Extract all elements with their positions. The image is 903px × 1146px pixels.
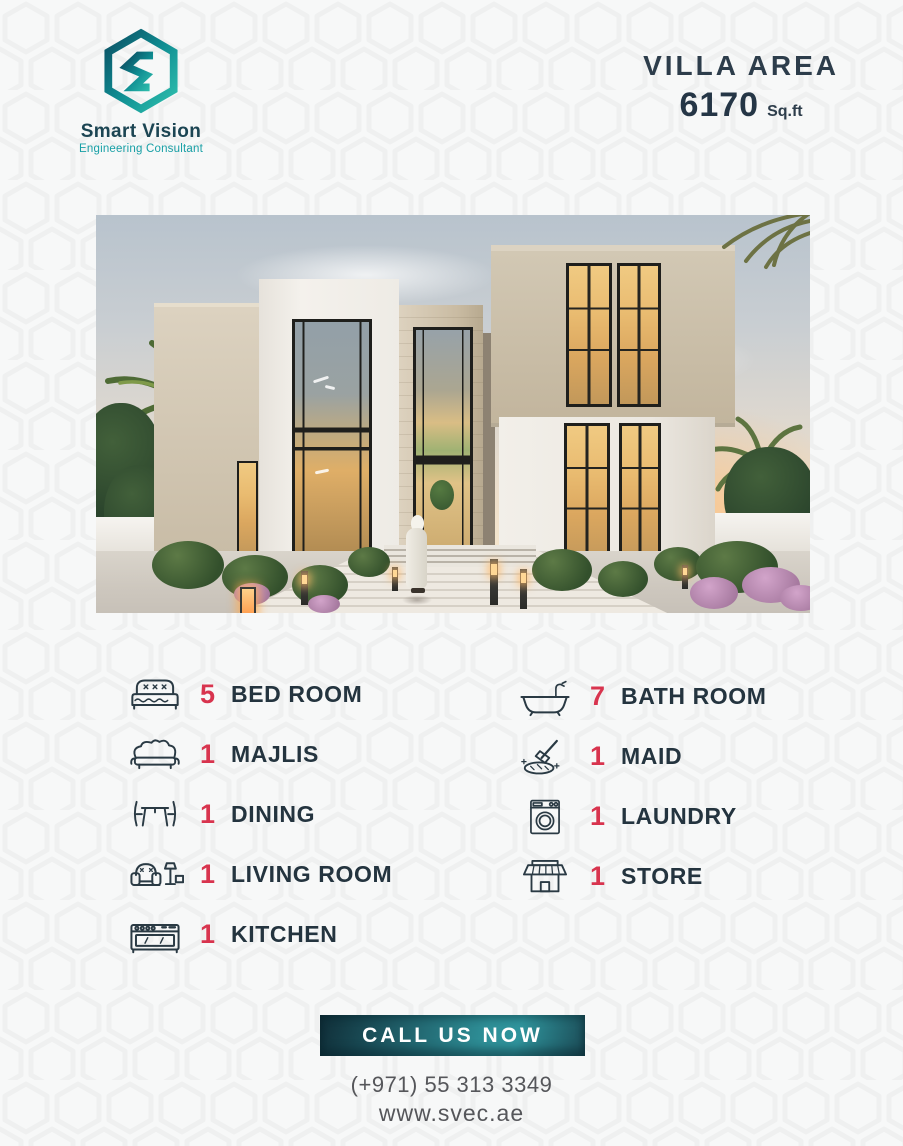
narrow-window — [237, 461, 258, 557]
bush — [654, 547, 702, 581]
brand-name: Smart Vision — [46, 121, 236, 143]
bush — [152, 541, 224, 589]
feature-row-store: 1 STORE — [516, 854, 767, 899]
bed-icon — [126, 672, 184, 718]
lower-window-2 — [619, 423, 661, 565]
dining-table-icon — [126, 792, 184, 838]
sofa-icon — [126, 732, 184, 778]
villa-area-label: VILLA AREA — [643, 50, 839, 82]
feature-row-kitchen: 1 KITCHEN — [126, 912, 392, 957]
feature-count: 1 — [200, 799, 215, 830]
washing-machine-icon — [516, 794, 574, 840]
bollard-light — [490, 559, 498, 605]
feature-count: 1 — [590, 741, 605, 772]
bush — [348, 547, 390, 577]
feature-count: 7 — [590, 681, 605, 712]
feature-count: 1 — [200, 859, 215, 890]
person-in-kandura — [402, 515, 432, 607]
palm-frond-overhang — [692, 215, 810, 281]
armchair-lamp-icon — [126, 852, 184, 898]
bathtub-icon — [516, 674, 574, 720]
feature-count: 5 — [200, 679, 215, 710]
flyer-page: Smart Vision Engineering Consultant VILL… — [0, 0, 903, 1146]
feature-count: 1 — [200, 739, 215, 770]
feature-count: 1 — [200, 919, 215, 950]
feature-row-majlis: 1 MAJLIS — [126, 732, 392, 777]
villa-area-block: VILLA AREA 6170 Sq.ft — [643, 50, 839, 125]
flower-bush — [690, 577, 738, 609]
villa-area-unit: Sq.ft — [767, 103, 803, 121]
call-us-now-button[interactable]: CALL US NOW — [320, 1015, 585, 1056]
feature-label: DINING — [231, 801, 315, 828]
lower-window-1 — [564, 423, 610, 565]
feature-count: 1 — [590, 861, 605, 892]
villa-photo — [96, 215, 810, 613]
upper-window-1 — [566, 263, 612, 407]
storefront-icon — [516, 854, 574, 900]
flower-bush — [308, 595, 340, 613]
bollard-light — [520, 569, 527, 609]
feature-label: LAUNDRY — [621, 803, 737, 830]
window-mullions — [622, 426, 658, 562]
feature-row-living-room: 1 LIVING ROOM — [126, 852, 392, 897]
window-mullions — [295, 322, 369, 562]
garden-lantern — [240, 587, 256, 613]
window-mullions — [567, 426, 607, 562]
cleaning-icon — [516, 734, 574, 780]
hexagon-s-logo-icon — [97, 28, 185, 114]
brand-logo-block: Smart Vision Engineering Consultant — [46, 28, 236, 155]
feature-row-dining: 1 DINING — [126, 792, 392, 837]
feature-row-bathroom: 7 BATH ROOM — [516, 674, 767, 719]
feature-list-right: 7 BATH ROOM 1 MAID — [516, 674, 767, 899]
feature-label: BATH ROOM — [621, 683, 767, 710]
window-mullions — [569, 266, 609, 404]
bollard-light — [301, 571, 308, 605]
feature-label: MAID — [621, 743, 682, 770]
feature-row-bedroom: 5 BED ROOM — [126, 672, 392, 717]
bollard-light — [392, 567, 398, 591]
feature-row-maid: 1 MAID — [516, 734, 767, 779]
feature-label: KITCHEN — [231, 921, 337, 948]
cta-label: CALL US NOW — [362, 1024, 543, 1048]
tall-window-left — [292, 319, 372, 565]
bush — [532, 549, 592, 591]
feature-label: STORE — [621, 863, 703, 890]
bollard-light — [682, 565, 688, 589]
feature-count: 1 — [590, 801, 605, 832]
window-mullions — [620, 266, 658, 404]
stove-icon — [126, 912, 184, 958]
website-url[interactable]: www.svec.ae — [0, 1100, 903, 1127]
feature-label: BED ROOM — [231, 681, 362, 708]
brand-tagline: Engineering Consultant — [46, 143, 236, 155]
feature-label: LIVING ROOM — [231, 861, 392, 888]
upper-window-2 — [617, 263, 661, 407]
phone-number[interactable]: (+971) 55 313 3349 — [0, 1072, 903, 1098]
feature-row-laundry: 1 LAUNDRY — [516, 794, 767, 839]
feature-list-left: 5 BED ROOM 1 MAJLIS — [126, 672, 392, 957]
bush — [598, 561, 648, 597]
feature-label: MAJLIS — [231, 741, 319, 768]
villa-area-value: 6170 — [679, 86, 759, 125]
interior-tree — [430, 480, 454, 510]
